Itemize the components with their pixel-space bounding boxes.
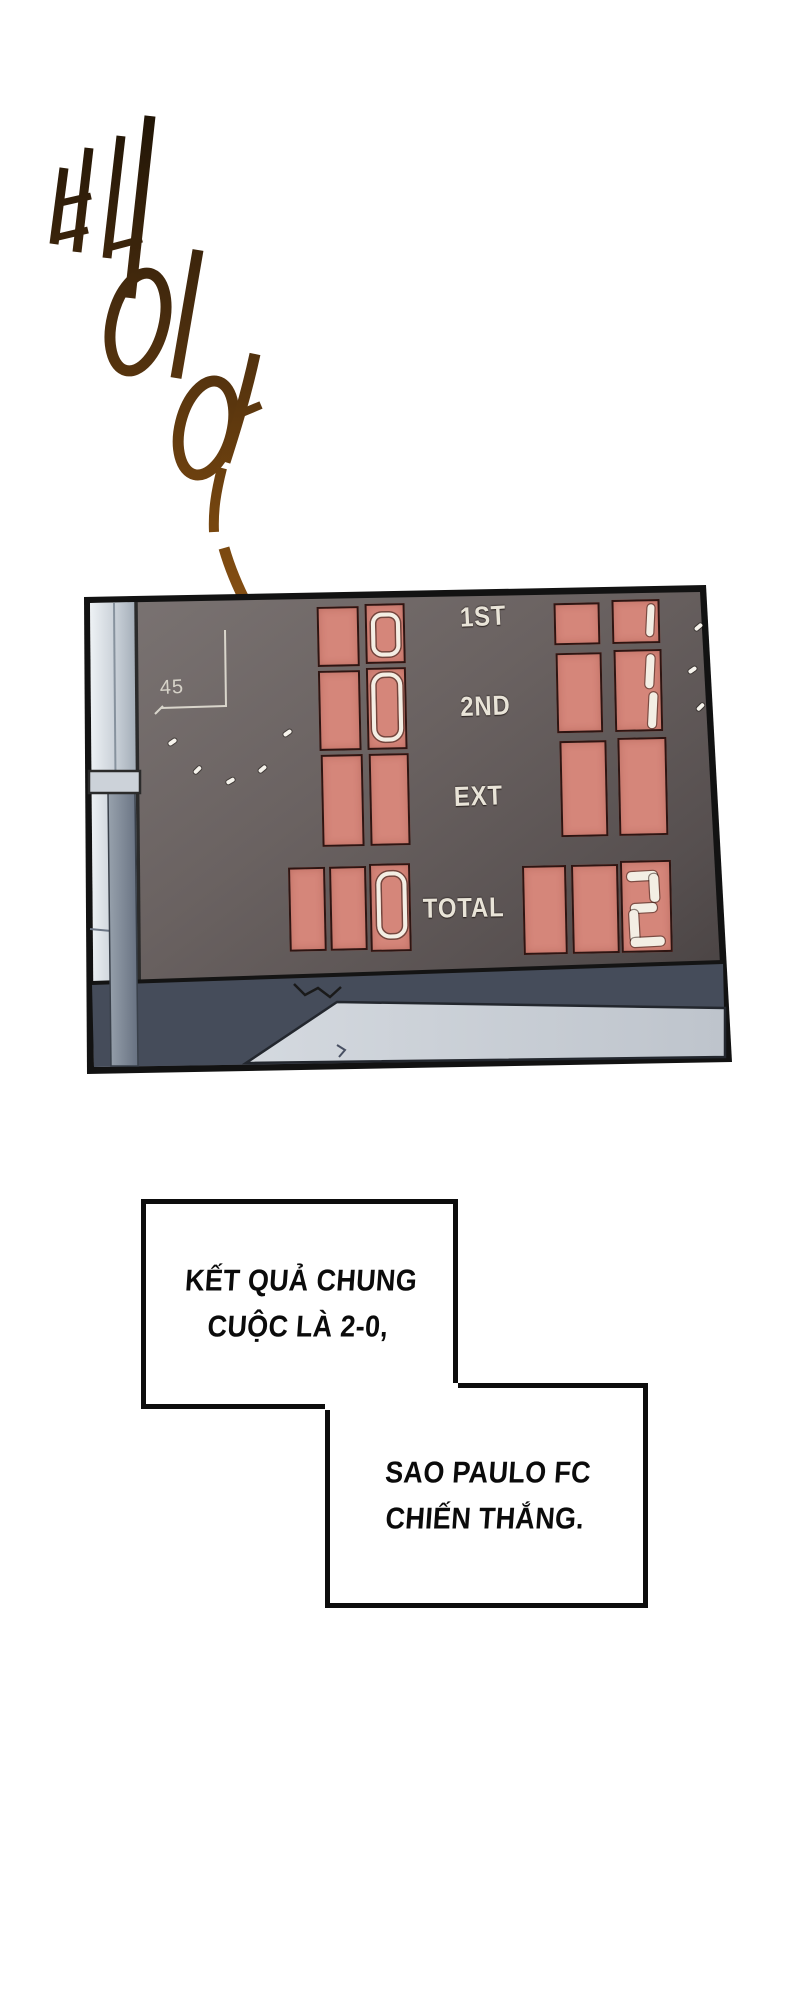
away-digit-2nd-one-top: [645, 654, 655, 688]
row-label-ext: EXT: [453, 780, 503, 814]
bubble-2-line-1: SAO PAULO FC: [384, 1450, 593, 1496]
bubble-1-line-1: KẾT QUẢ CHUNG: [184, 1258, 419, 1304]
comic-page: 45: [0, 0, 800, 2000]
bubble-2-line-2: CHIẾN THẮNG.: [384, 1496, 586, 1542]
away-score-column: [0, 0, 800, 2000]
bubble-1-line-2: CUỘC LÀ 2-0,: [206, 1304, 390, 1350]
away-cell-ext-b: [617, 737, 668, 836]
row-label-2nd: 2ND: [460, 690, 511, 724]
away-cell-total-a: [522, 865, 568, 955]
row-label-1st: 1ST: [459, 600, 507, 634]
away-cell-1st-a: [553, 602, 600, 645]
away-cell-total-b: [571, 864, 620, 954]
away-cell-ext-a: [559, 740, 608, 837]
away-cell-2nd-a: [556, 652, 604, 733]
away-digit-total-two: [619, 864, 672, 953]
row-label-total: TOTAL: [423, 892, 505, 925]
speech-bubble-2-text: SAO PAULO FC CHIẾN THẮNG.: [316, 1370, 657, 1622]
